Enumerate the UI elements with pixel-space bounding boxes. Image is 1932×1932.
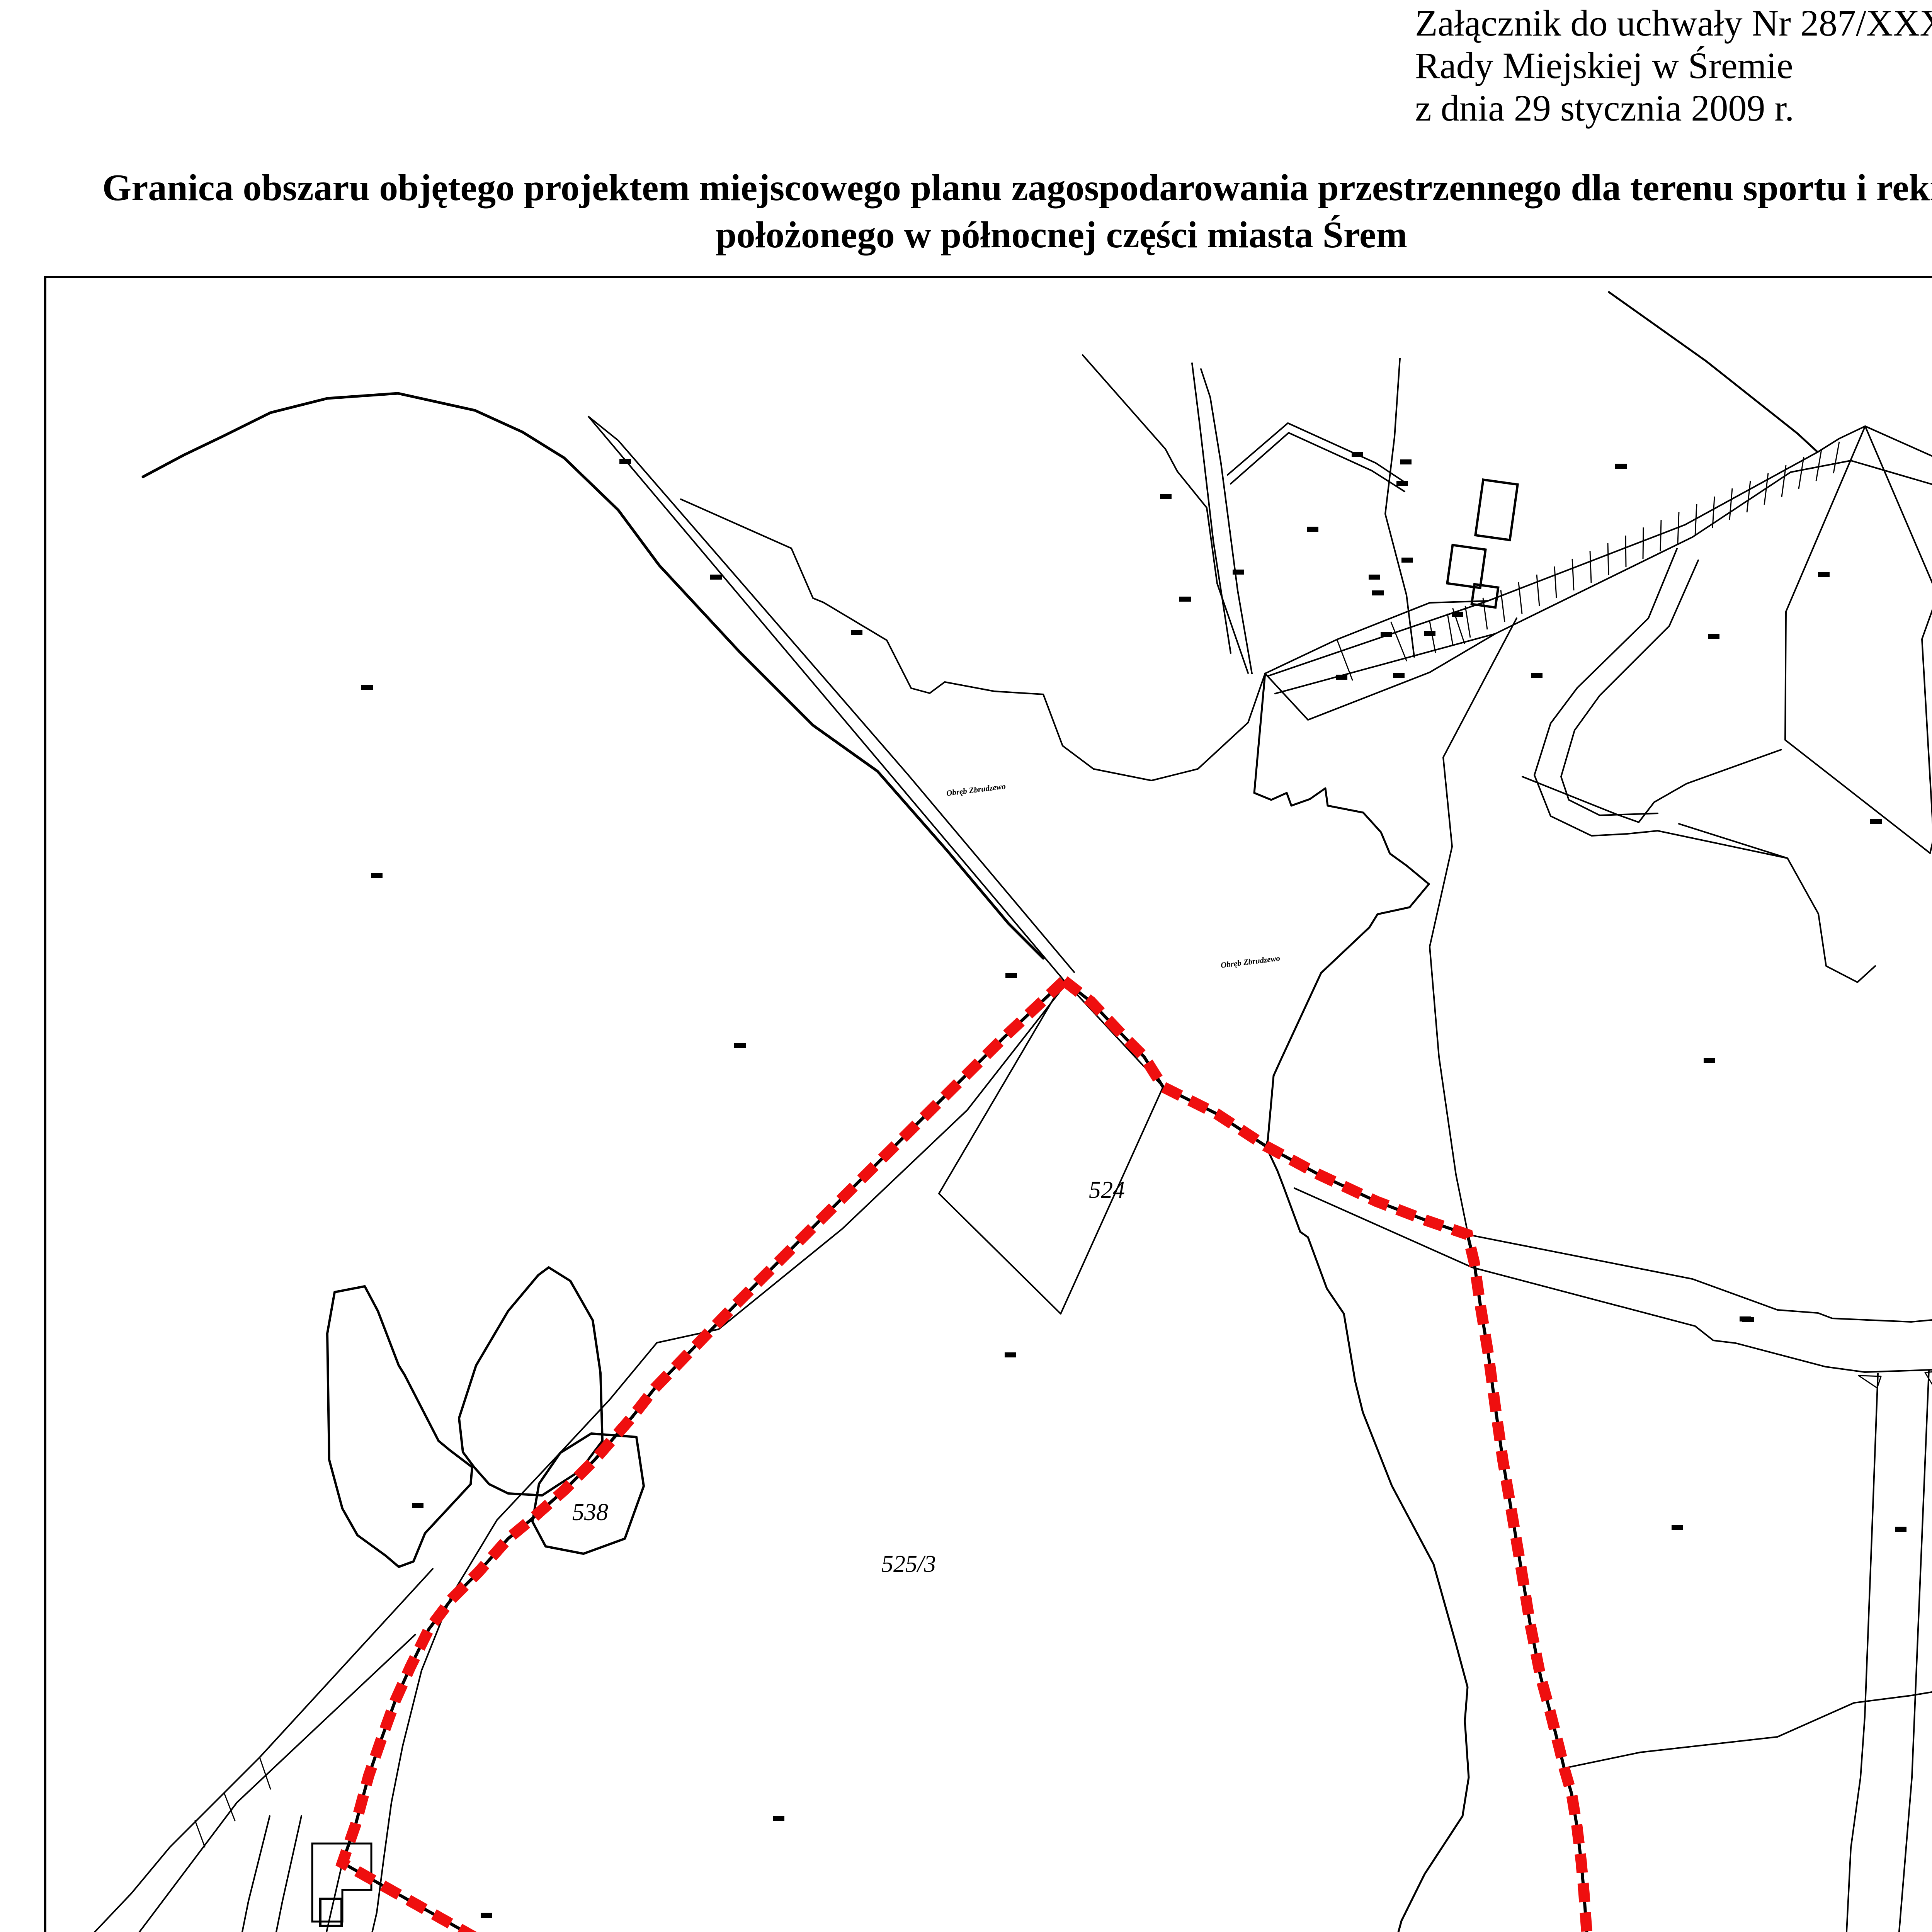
- svg-text:Załącznik do uchwały Nr 287/XX: Załącznik do uchwały Nr 287/XXXIII/09: [1415, 2, 1932, 44]
- svg-text:położonego w północnej części: położonego w północnej części miasta Śre…: [716, 214, 1407, 255]
- svg-text:524: 524: [1089, 1177, 1125, 1203]
- svg-text:525/3: 525/3: [881, 1551, 936, 1577]
- svg-text:Granica obszaru objętego proje: Granica obszaru objętego projektem miejs…: [102, 167, 1932, 208]
- svg-text:z dnia 29 stycznia 2009 r.: z dnia 29 stycznia 2009 r.: [1415, 87, 1794, 129]
- svg-text:Rady Miejskiej w Śremie: Rady Miejskiej w Śremie: [1415, 45, 1793, 86]
- svg-text:538: 538: [572, 1499, 608, 1526]
